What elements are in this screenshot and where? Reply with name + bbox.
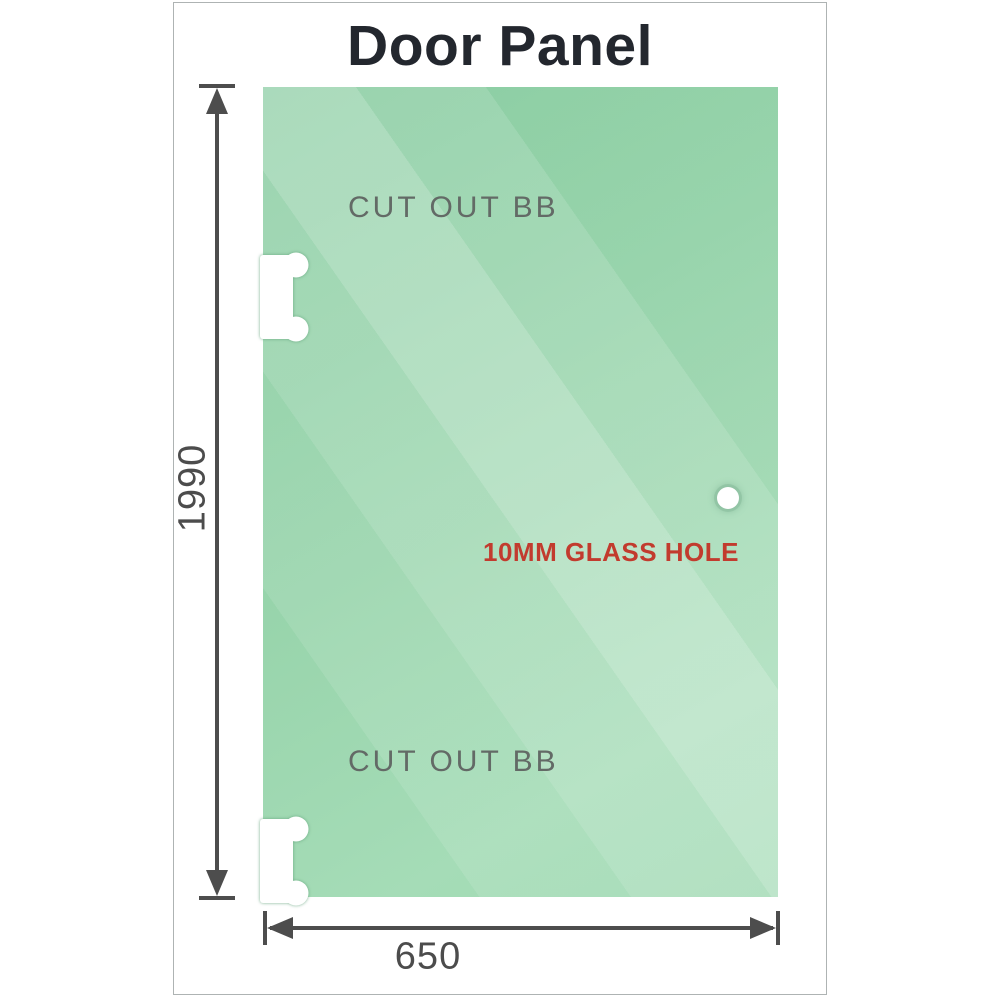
glass-hole-label: 10MM GLASS HOLE: [483, 537, 739, 568]
cutout-label-bottom: CUT OUT BB: [348, 745, 559, 779]
cutout-notch: [260, 255, 293, 339]
width-dimension-label: 650: [395, 936, 461, 979]
cutout-notch: [260, 819, 293, 903]
hinge-cutout-bottom-icon: [260, 814, 312, 916]
hinge-cutout-bottom-shape: [260, 817, 309, 906]
glass-hole: [717, 487, 739, 509]
cutout-label-top: CUT OUT BB: [348, 191, 559, 225]
glass-panel: CUT OUT BB CUT OUT BB 10MM GLASS HOLE: [263, 87, 778, 897]
height-dimension-label: 1990: [172, 444, 215, 533]
page-title: Door Panel: [347, 13, 653, 79]
hinge-cutout-top-shape: [260, 253, 309, 342]
door-panel-diagram: Door Panel CUT OUT BB CUT OUT BB 10MM GL…: [0, 0, 1000, 1000]
hinge-cutout-top-icon: [260, 250, 312, 352]
